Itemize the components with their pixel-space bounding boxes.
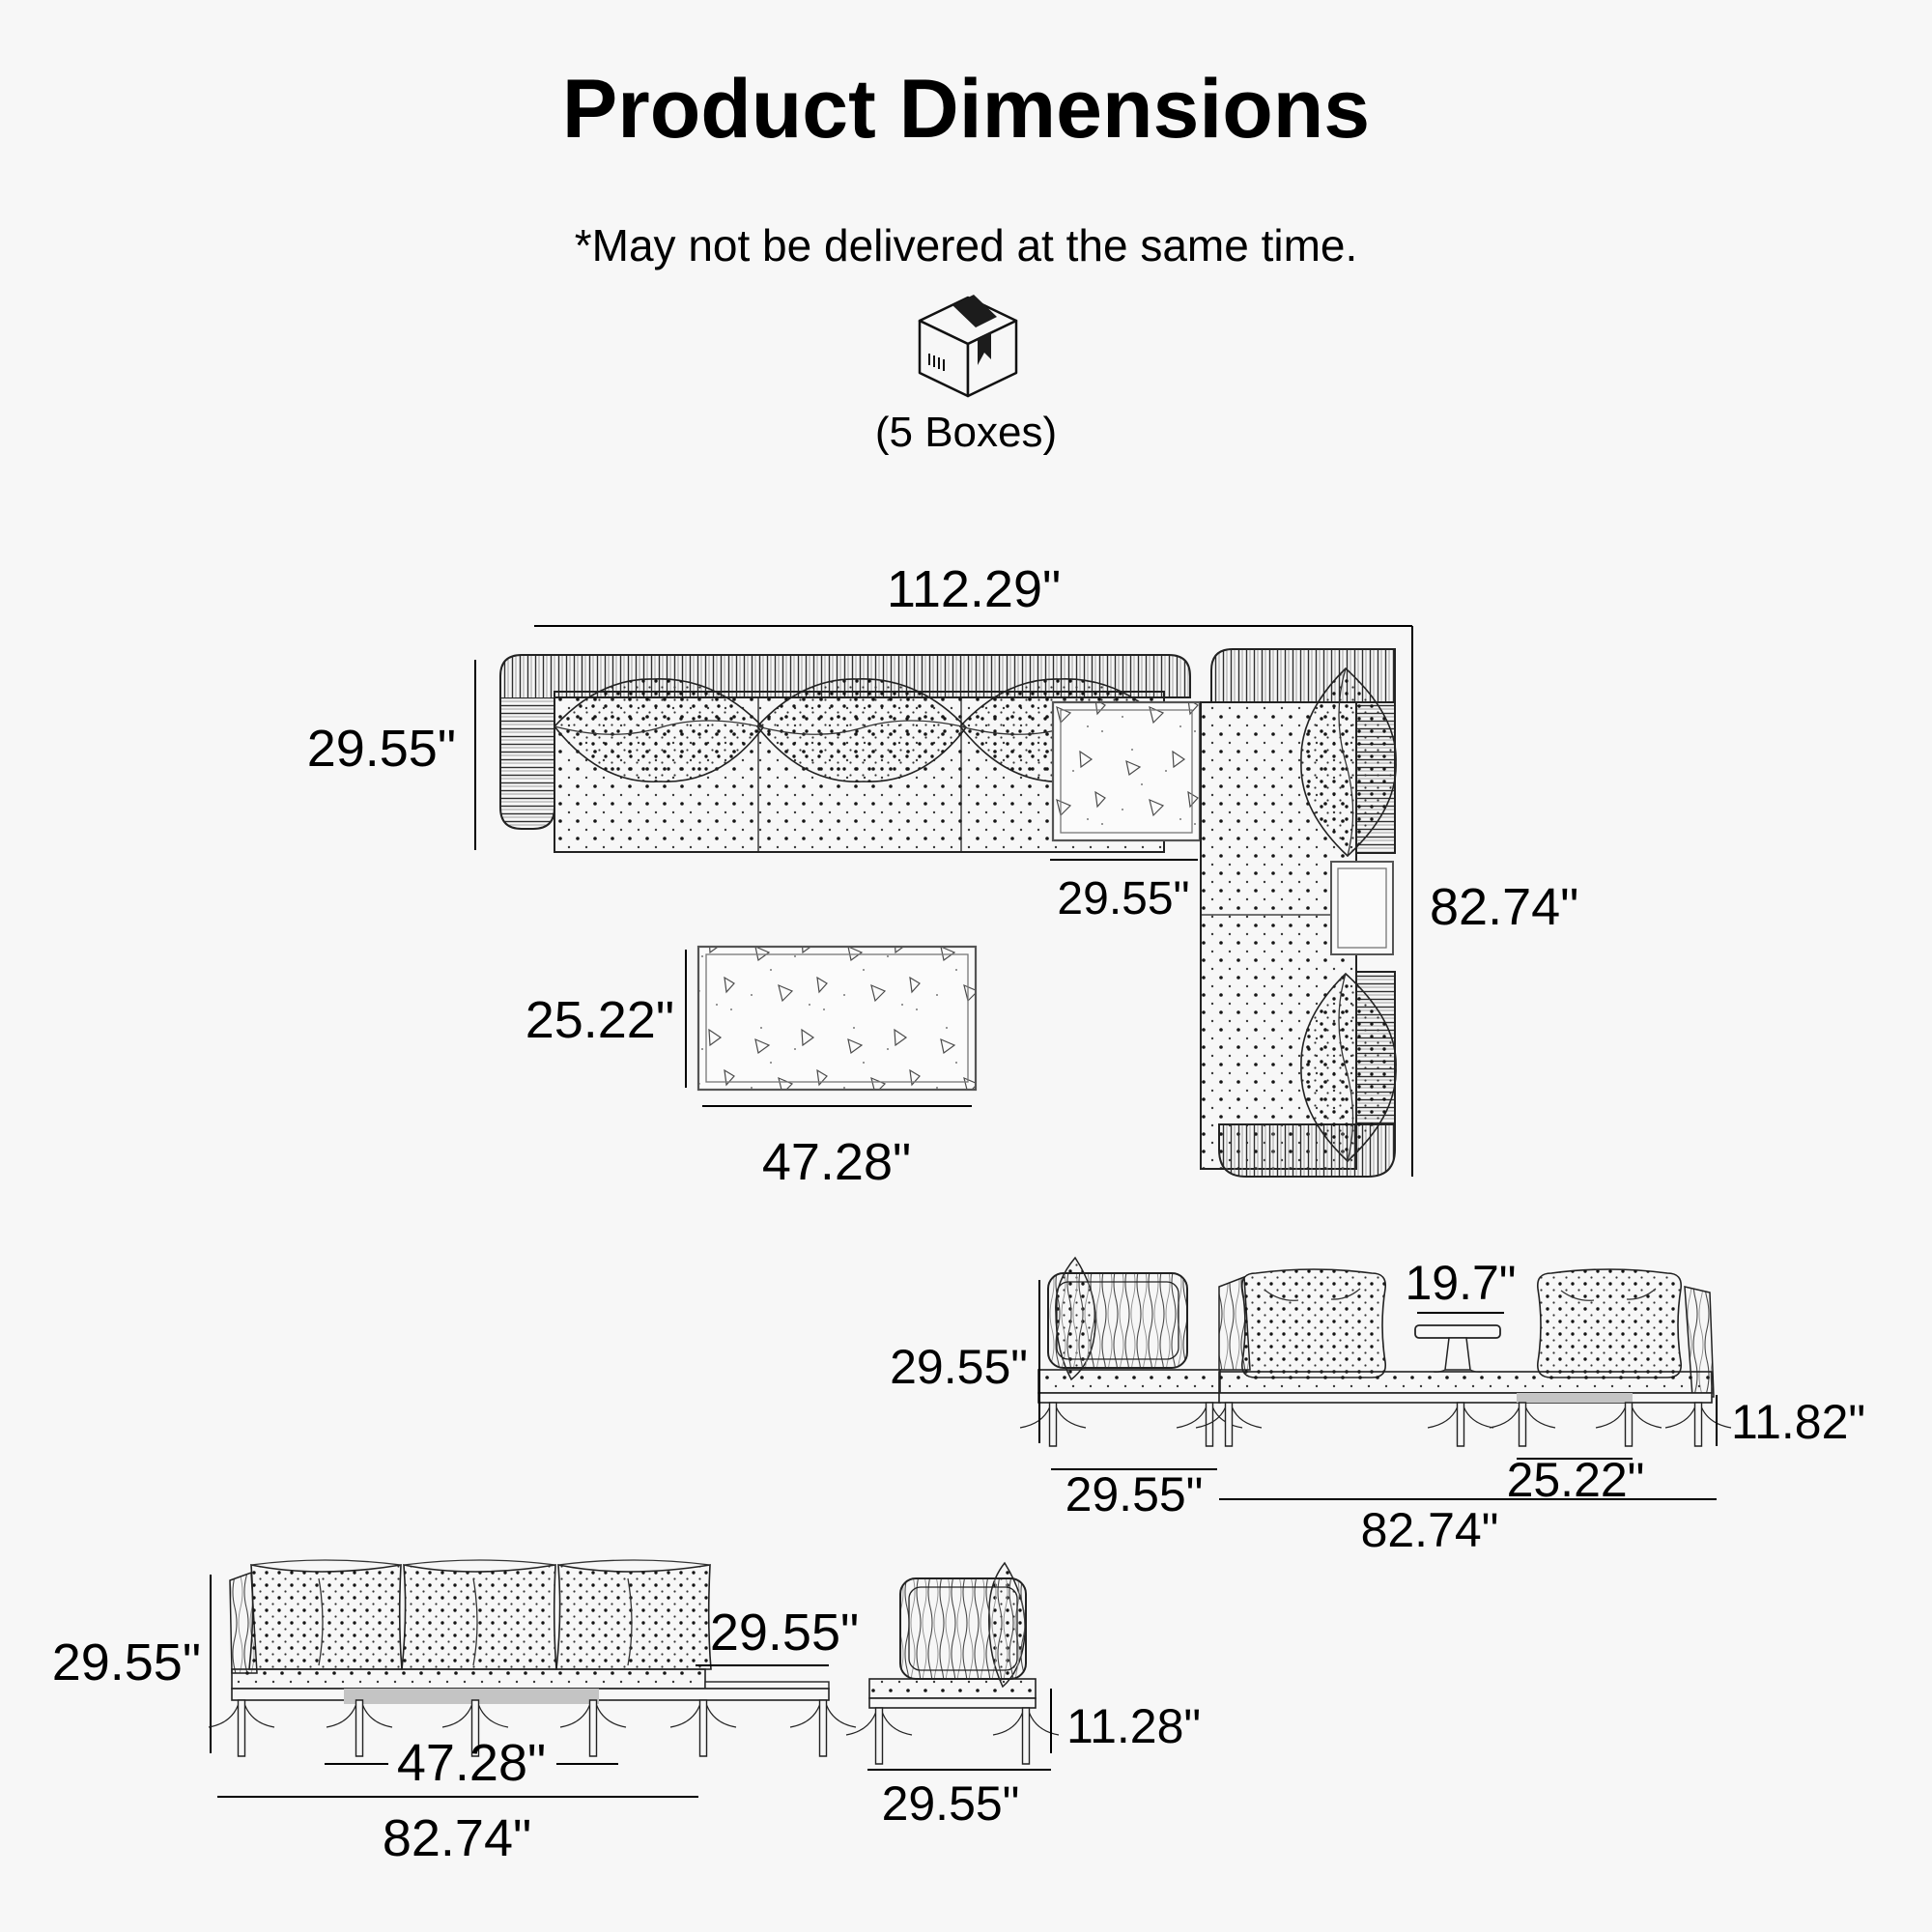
dim-sofa-depth-label: 29.55" (307, 720, 456, 778)
package-box-icon (920, 295, 1016, 396)
corner-table (1053, 702, 1200, 840)
dim-side-length-label: 82.74" (1430, 878, 1578, 936)
leg (560, 1700, 626, 1756)
corner-chair-seat (1038, 1370, 1220, 1403)
bench-seat (1219, 1372, 1712, 1403)
bench-module-highlight (1517, 1393, 1633, 1403)
top-view: 112.29" 82.74" 29.55" (307, 560, 1579, 1191)
dim-bench-table-width-label: 19.7" (1405, 1256, 1516, 1310)
leg (327, 1700, 392, 1756)
dim-coffee-depth-label: 25.22" (526, 991, 674, 1049)
side-table-top-view (1331, 862, 1393, 954)
leg (1665, 1403, 1731, 1446)
dim-sofa-side-depth-label: 29.55" (710, 1604, 859, 1662)
round-side-table (1415, 1325, 1500, 1372)
dim-corner-width-label: 29.55" (1057, 873, 1189, 924)
bench-side-view: 19.7" 29.55" 11.82" 25.22" 29.55" (890, 1256, 1865, 1557)
bench-pillow-right (1538, 1269, 1681, 1378)
product-dimensions-page: Product Dimensions *May not be delivered… (0, 0, 1932, 1932)
chair-side-view: 11.28" 29.55" (846, 1563, 1201, 1831)
box-count-label: (5 Boxes) (875, 409, 1057, 456)
dim-coffee-width-label: 47.28" (762, 1133, 911, 1191)
dim-bench-total-width-label: 82.74" (1361, 1503, 1499, 1557)
sofa-side-view: 29.55" 29.55" 47.28" 82.74" (52, 1560, 859, 1867)
dim-chair-seat-height-label: 11.28" (1066, 1699, 1201, 1753)
leg (1428, 1403, 1493, 1446)
dim-sofa-total-width-label: 82.74" (383, 1809, 531, 1867)
leg (1020, 1403, 1086, 1446)
leg (846, 1708, 912, 1764)
delivery-note: *May not be delivered at the same time. (575, 220, 1358, 270)
chair-wicker-back (900, 1578, 1026, 1679)
leg (1490, 1403, 1555, 1446)
leg (670, 1700, 736, 1756)
sofa-back-pillows (249, 1560, 711, 1669)
leg (790, 1700, 856, 1756)
page-title: Product Dimensions (562, 63, 1370, 156)
chaise-top-view (1201, 649, 1396, 1177)
sofa-side-seat (232, 1669, 829, 1704)
dim-bench-seat-height-label: 11.82" (1731, 1395, 1865, 1449)
leg (209, 1700, 274, 1756)
dim-sofa-table-width-label: 47.28" (397, 1734, 546, 1792)
dim-chair-width-label: 29.55" (882, 1776, 1020, 1831)
dim-bench-chair-width-label: 29.55" (1065, 1467, 1204, 1521)
leg (1596, 1403, 1662, 1446)
dim-top-total-width-label: 112.29" (887, 560, 1061, 618)
chair-seat (869, 1679, 1036, 1708)
dim-bench-height-label: 29.55" (890, 1340, 1028, 1394)
coffee-table (698, 947, 976, 1090)
dim-sofa-side-height-label: 29.55" (52, 1634, 201, 1691)
corner-chair-wicker-back (1048, 1273, 1187, 1368)
leg (993, 1708, 1059, 1764)
bench-pillow-left (1242, 1269, 1385, 1378)
